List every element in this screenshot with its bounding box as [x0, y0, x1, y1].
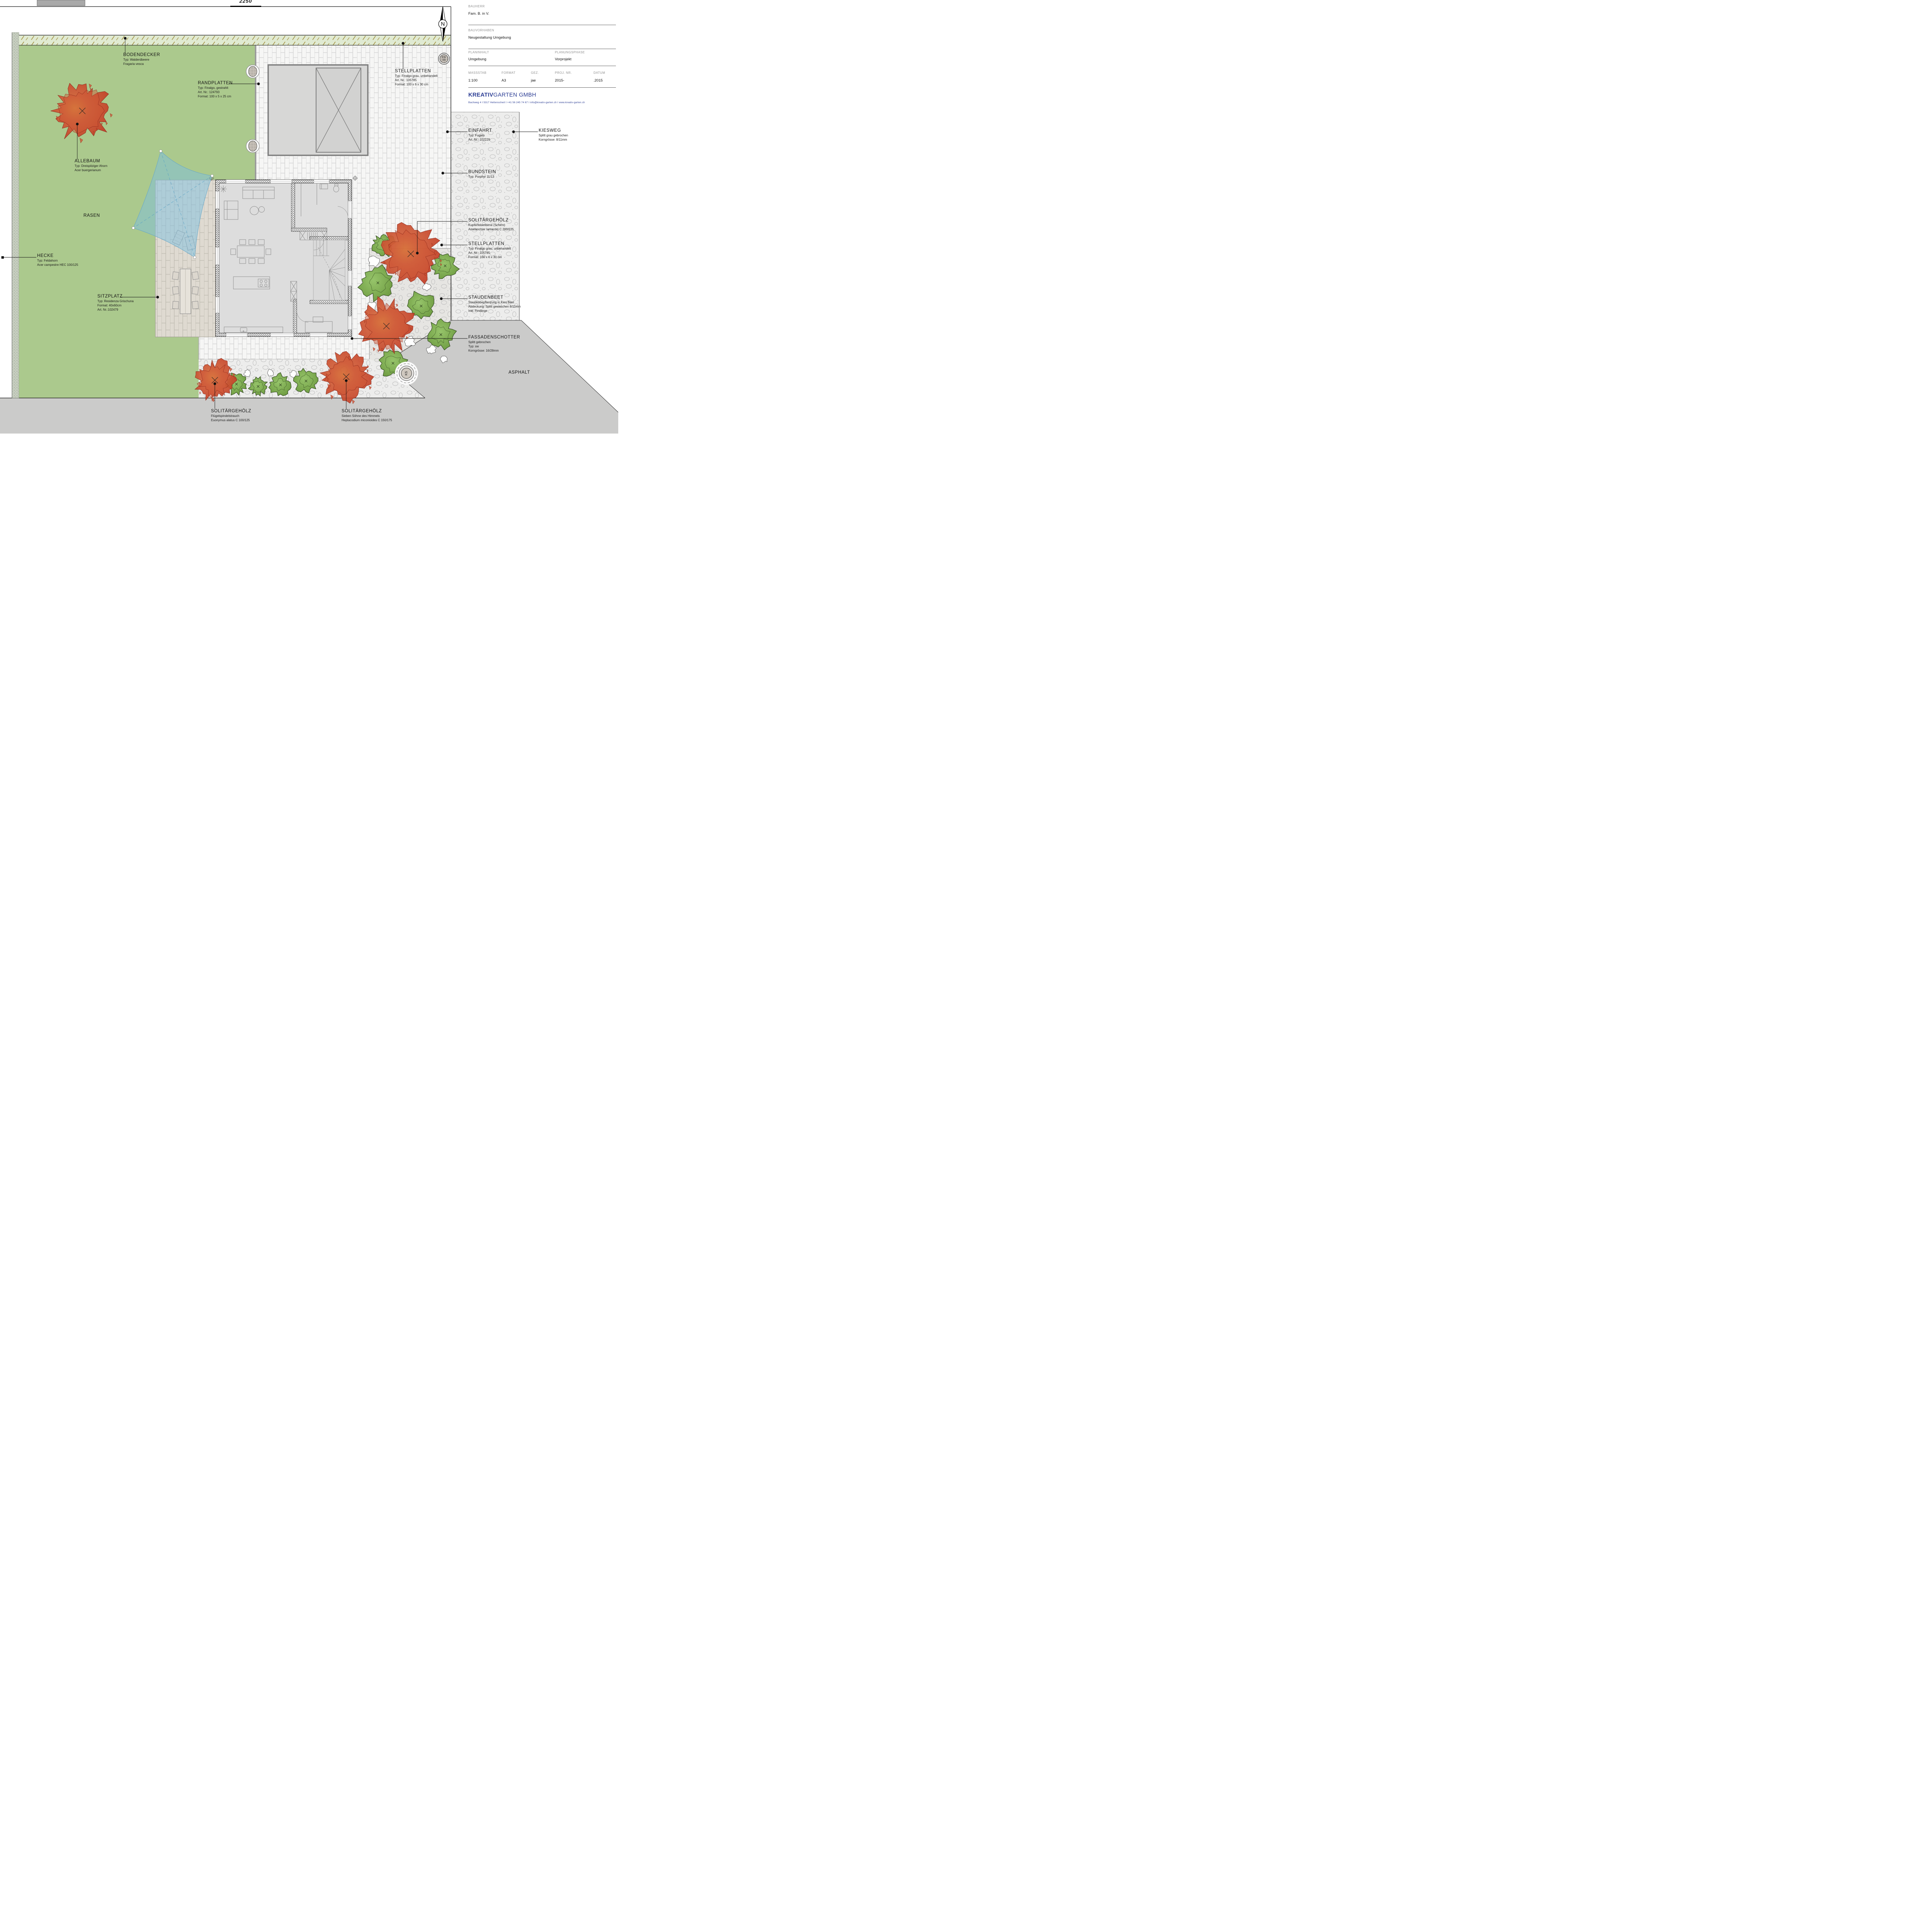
annotation-title: EINFAHRT: [468, 128, 492, 133]
divider: [468, 87, 616, 88]
svg-text:KS: KS: [405, 371, 408, 376]
annotation-title: SOLITÄRGEHÖLZ: [342, 409, 392, 414]
annotation-solitaergehoelz-heptacodium: SOLITÄRGEHÖLZSieben Söhne des HimmelsHep…: [342, 409, 392, 422]
projnr-value: 2015-: [555, 78, 594, 83]
annotation-line: Art. Nr.: 105785: [468, 251, 511, 255]
plan-number: 2250: [230, 0, 261, 7]
annotation-line: Abdeckung: Splitt gewaschen 8/11mm: [468, 304, 520, 309]
annotation-line: Korngrösse: 16/28mm: [468, 349, 520, 353]
annotation-solitaergehoelz-euonymus: SOLITÄRGEHÖLZFlügelspindelstrauchEuonymu…: [211, 409, 251, 422]
svg-text:SS: SS: [442, 59, 446, 61]
annotation-line: Typ: Dreispitziger Ahorn: [75, 164, 107, 168]
annotation-asphalt: ASPHALT: [509, 370, 530, 375]
annotation-line: Typ: sw: [468, 344, 520, 349]
annotation-line: Art. Nr.:102479: [97, 308, 134, 312]
annotation-line: Typ: Finalgo grau, unbehandelt: [395, 74, 437, 78]
annotation-line: Format: 40x60cm: [97, 303, 134, 308]
divider: [468, 49, 616, 49]
annotation-title: BODENDECKER: [123, 53, 160, 58]
annotation-line: Inkl. Findlinge: [468, 309, 520, 313]
annotation-line: Format: 100 x 6 x 30 cm: [395, 82, 437, 87]
annotation-staudenbeet: STAUDENBEETStaudenbepflanzung in Kies Be…: [468, 295, 520, 313]
site-plan-page: ES/ SS: [0, 0, 618, 434]
annotation-line: Heptacodium miconioides C 150/175: [342, 418, 392, 422]
annotation-title: BUNDSTEIN: [468, 170, 496, 175]
bauvorhaben-label: BAUVORHABEN: [468, 29, 616, 32]
annotation-line: Kupferfelsenbirne (Schirm): [468, 223, 514, 227]
annotation-kiesweg: KIESWEGSplitt grau gebrochenKorngrösse: …: [539, 128, 568, 142]
annotation-title: FASSADENSCHOTTER: [468, 335, 520, 340]
format-label: FORMAT: [502, 71, 531, 75]
planungsphase-value: Vorprojekt: [555, 57, 571, 61]
annotation-line: Acer campestre HEC 100/125: [37, 263, 78, 267]
annotation-line: Typ: Fugato: [468, 133, 492, 138]
annotation-title: SOLITÄRGEHÖLZ: [468, 218, 514, 223]
annotation-stellplatten-ost: STELLPLATTENTyp: Finalgo grau, unbehande…: [468, 241, 511, 259]
house: [209, 175, 358, 337]
annotation-line: Art. Nr.: 105785: [395, 78, 437, 82]
datum-value: .2015: [594, 78, 603, 83]
bauherr-value: Fam. B. in V.: [468, 12, 616, 16]
annotation-hecke: HECKETyp: FeldahornAcer campestre HEC 10…: [37, 253, 78, 267]
gez-value: jae: [531, 78, 555, 83]
annotation-line: Typ: Walderdbeere: [123, 58, 160, 62]
annotation-title: SITZPLATZ: [97, 294, 134, 299]
ks-marker-icon: KS: [395, 362, 418, 385]
annotation-line: Art. Nr.: 124793: [198, 90, 233, 94]
hedge-band: [12, 32, 19, 398]
company-contact: Bachweg 4 I 5317 Hettenschwil I +41 56 2…: [468, 101, 585, 104]
annotation-randplatten: RANDPLATTENTyp: Finalgo, gestrahltArt. N…: [198, 81, 233, 99]
annotation-stellplatten-nord: STELLPLATTENTyp: Finalgo grau, unbehande…: [395, 69, 437, 87]
format-value: A3: [502, 78, 531, 83]
annotation-line: Format: 100 x 6 x 30 cm: [468, 255, 511, 259]
annotation-bundstein: BUNDSTEINTyp: Porphyr 11/13: [468, 170, 496, 179]
annotation-solitaergehoelz-amelanchier: SOLITÄRGEHÖLZKupferfelsenbirne (Schirm)A…: [468, 218, 514, 231]
bauherr-label: BAUHERR: [468, 5, 616, 8]
annotation-title: RANDPLATTEN: [198, 81, 233, 86]
annotation-line: Splitt gebrochen: [468, 340, 520, 344]
massstab-value: 1:100: [468, 78, 502, 83]
neighbor-building: [37, 0, 85, 6]
annotation-title: KIESWEG: [539, 128, 568, 133]
annotation-line: Typ: Feldahorn: [37, 259, 78, 263]
annotation-title: SOLITÄRGEHÖLZ: [211, 409, 251, 414]
annotation-line: Typ: Finalgo grau, unbehandelt: [468, 247, 511, 251]
garage: [268, 65, 368, 155]
annotation-title: STELLPLATTEN: [468, 241, 511, 247]
annotation-title: HECKE: [37, 253, 78, 259]
annotation-line: Euonymus alatus C 100/125: [211, 418, 251, 422]
annotation-title: RASEN: [83, 213, 100, 218]
es-ss-manhole-icon: ES/ SS: [439, 53, 450, 65]
gez-label: GEZ.: [531, 71, 555, 75]
planinhalt-value: Umgebung: [468, 57, 555, 61]
divider: [468, 25, 616, 25]
annotation-line: Acer buergerianum: [75, 168, 107, 172]
annotation-line: Typ: Porphyr 11/13: [468, 175, 496, 179]
annotation-line: Staudenbepflanzung in Kies Beet: [468, 300, 520, 304]
annotation-line: Fragaria vesca: [123, 62, 160, 66]
planinhalt-label: PLANINHALT: [468, 51, 555, 54]
annotation-title: STELLPLATTEN: [395, 69, 437, 74]
svg-text:ES/: ES/: [442, 56, 446, 59]
annotation-einfahrt: EINFAHRTTyp: FugatoArt. Nr.: 102229: [468, 128, 492, 142]
annotation-sitzplatz: SITZPLATZTyp: Residenza GrischunaFormat:…: [97, 294, 134, 312]
annotation-line: Splitt grau gebrochen: [539, 133, 568, 138]
projnr-label: PROJ. NR.: [555, 71, 594, 75]
svg-text:N: N: [441, 21, 445, 27]
annotation-allebaum: ALLEBAUMTyp: Dreispitziger AhornAcer bue…: [75, 159, 107, 172]
datum-label: DATUM: [594, 71, 605, 75]
annotation-line: Korngrösse: 8/11mm: [539, 138, 568, 142]
bauvorhaben-value: Neugestaltung Umgebung: [468, 36, 616, 40]
company-name: KREATIVGARTEN GMBH: [468, 92, 536, 98]
annotation-title: ALLEBAUM: [75, 159, 107, 164]
annotation-line: Amelanchier lamarckii C 200/225: [468, 227, 514, 231]
annotation-title: STAUDENBEET: [468, 295, 520, 300]
planungsphase-label: PLANUNGSPHASE: [555, 51, 585, 54]
annotation-rasen: RASEN: [83, 213, 100, 218]
massstab-label: MASSSTAB: [468, 71, 502, 75]
annotation-fassadenschotter: FASSADENSCHOTTERSplitt gebrochenTyp: swK…: [468, 335, 520, 353]
annotation-line: Typ: Residenza Grischuna: [97, 299, 134, 303]
annotation-title: ASPHALT: [509, 370, 530, 375]
annotation-bodendecker: BODENDECKERTyp: WalderdbeereFragaria ves…: [123, 53, 160, 66]
annotation-line: Format: 100 x 5 x 25 cm: [198, 94, 233, 99]
annotation-line: Flügelspindelstrauch: [211, 414, 251, 418]
divider: [468, 66, 616, 66]
annotation-line: Typ: Finalgo, gestrahlt: [198, 86, 233, 90]
annotation-line: Sieben Söhne des Himmels: [342, 414, 392, 418]
annotation-line: Art. Nr.: 102229: [468, 138, 492, 142]
